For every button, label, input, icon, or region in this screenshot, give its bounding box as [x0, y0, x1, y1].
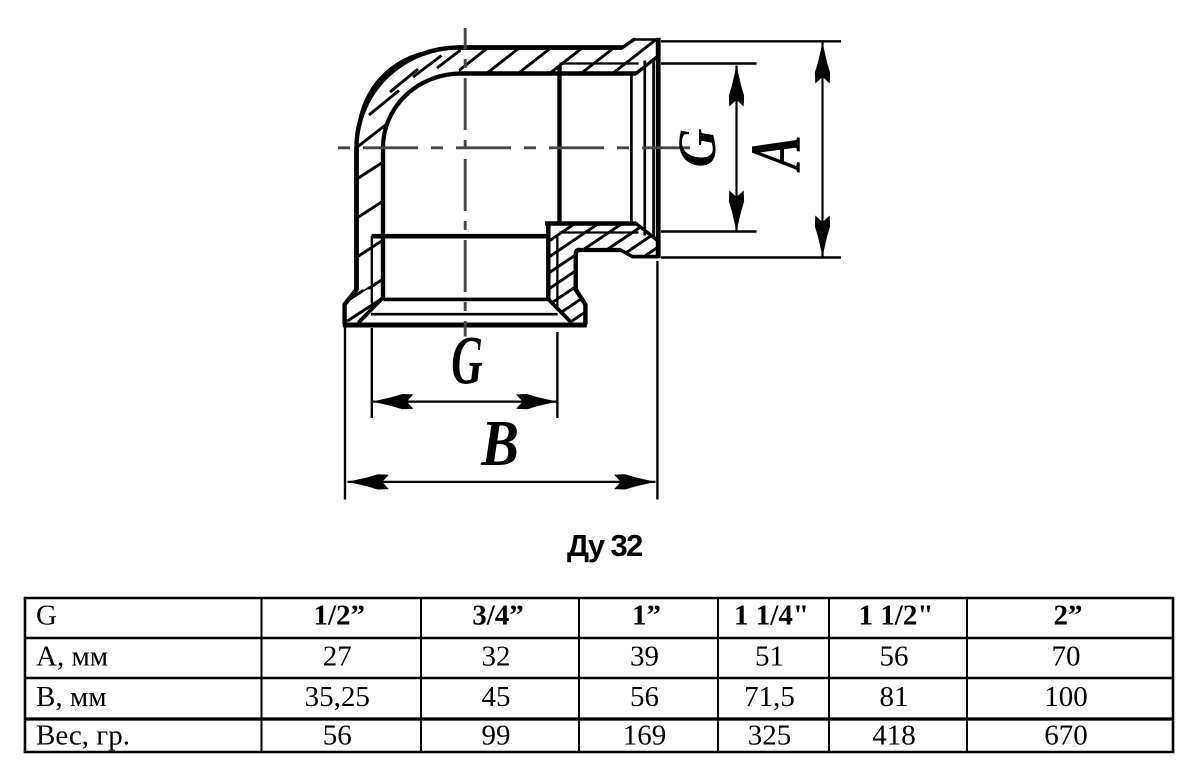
svg-text:670: 670 — [1044, 720, 1088, 752]
svg-text:G: G — [36, 600, 57, 632]
svg-text:39: 39 — [630, 641, 659, 673]
svg-text:27: 27 — [323, 641, 352, 673]
svg-text:2”: 2” — [1054, 600, 1083, 632]
svg-text:B: B — [480, 407, 519, 480]
svg-text:100: 100 — [1044, 681, 1088, 713]
svg-text:G: G — [451, 321, 483, 399]
svg-text:169: 169 — [623, 720, 667, 752]
svg-text:G: G — [667, 129, 727, 168]
svg-text:Ду 32: Ду 32 — [567, 528, 642, 563]
svg-text:418: 418 — [872, 720, 916, 752]
svg-text:56: 56 — [630, 681, 659, 713]
svg-text:1 1/2": 1 1/2" — [859, 600, 934, 632]
svg-text:1 1/4": 1 1/4" — [734, 600, 809, 632]
svg-text:70: 70 — [1052, 641, 1081, 673]
svg-text:В, мм: В, мм — [36, 681, 107, 713]
svg-text:99: 99 — [482, 720, 511, 752]
svg-text:71,5: 71,5 — [744, 681, 795, 713]
svg-text:A: A — [736, 135, 816, 173]
svg-text:Вес, гр.: Вес, гр. — [36, 720, 130, 752]
svg-text:56: 56 — [880, 641, 909, 673]
svg-text:32: 32 — [482, 641, 511, 673]
svg-text:45: 45 — [482, 681, 511, 713]
svg-text:35,25: 35,25 — [305, 681, 370, 713]
svg-text:1/2”: 1/2” — [313, 600, 365, 632]
svg-text:325: 325 — [748, 720, 792, 752]
svg-text:3/4”: 3/4” — [472, 600, 524, 632]
svg-text:56: 56 — [323, 720, 352, 752]
svg-text:А, мм: А, мм — [36, 641, 108, 673]
svg-text:51: 51 — [755, 641, 784, 673]
svg-text:81: 81 — [880, 681, 909, 713]
svg-text:1”: 1” — [632, 600, 661, 632]
